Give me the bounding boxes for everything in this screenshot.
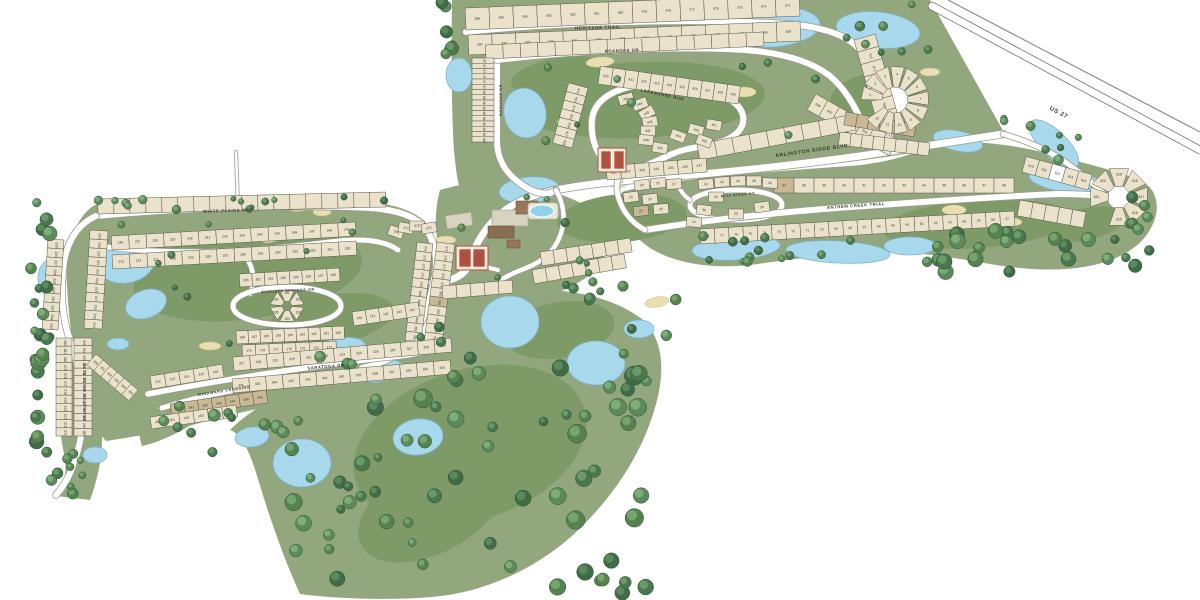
tree-highlight	[1134, 225, 1140, 231]
tree-highlight	[570, 426, 580, 436]
lot-number: 184	[287, 333, 293, 337]
lot-number: 2	[874, 82, 876, 86]
lot-number: 585	[498, 15, 504, 19]
tree-highlight	[577, 472, 586, 481]
sand-bunker	[199, 342, 221, 350]
lot-number: 204	[275, 250, 281, 254]
tree-highlight	[44, 227, 52, 235]
tree-highlight	[563, 411, 568, 416]
lot-number: 176	[286, 347, 292, 351]
lot-number: 197	[318, 274, 324, 278]
lot-number: 372	[414, 224, 420, 228]
lot-number: 460	[482, 138, 486, 144]
tree-highlight	[570, 284, 575, 289]
lot-number: 434	[654, 167, 660, 171]
tree-highlight	[1140, 201, 1146, 207]
lot	[801, 121, 821, 140]
lot	[906, 140, 919, 154]
lot-number: 24	[629, 195, 633, 199]
tree-highlight	[41, 214, 48, 221]
lot-number: 61	[948, 220, 952, 224]
lot-number: 382	[436, 309, 441, 315]
lot-number: 283	[82, 431, 86, 437]
tree-highlight	[291, 545, 298, 552]
tree-highlight	[450, 471, 458, 479]
tree-highlight	[1013, 231, 1021, 239]
tree-highlight	[356, 457, 365, 466]
lot-number: 246	[292, 230, 298, 234]
tree-highlight	[31, 327, 35, 331]
tree-highlight	[584, 261, 587, 264]
lot-number: 583	[546, 13, 552, 17]
tree-highlight	[925, 46, 929, 50]
tree-highlight	[437, 338, 442, 343]
tree-highlight	[1111, 236, 1116, 241]
tree-highlight	[545, 64, 549, 68]
lot-number: 220	[95, 269, 99, 275]
lot-number: 201	[327, 247, 333, 251]
lot-number: 208	[205, 254, 211, 258]
tree-highlight	[755, 247, 760, 252]
tree-highlight	[448, 371, 455, 378]
tree-highlight	[174, 423, 179, 428]
lot-number: 428	[717, 90, 723, 95]
lot-number: 183	[299, 332, 305, 336]
tree-highlight	[432, 403, 438, 409]
tree-highlight	[605, 554, 614, 563]
tree-highlight	[441, 27, 448, 34]
tree-highlight	[341, 218, 344, 221]
lot-number: 344	[272, 380, 278, 384]
tree-highlight	[1001, 236, 1008, 243]
lot-number: 586	[475, 16, 481, 20]
lot-number: 198	[305, 274, 311, 278]
lot-number: 429	[730, 92, 736, 97]
lot-number: 12	[875, 116, 879, 120]
lot-number: 377	[442, 264, 447, 270]
tree-highlight	[272, 198, 275, 201]
lot-number: 76	[734, 232, 738, 236]
tree-highlight	[344, 483, 349, 488]
street-label: ARLINGTON RIDGE BLVD	[83, 363, 87, 422]
lot-number: 42	[882, 184, 886, 188]
site-plan-page: 5865855845835825815805795785775765755745…	[0, 0, 1200, 600]
lot-number: 38	[802, 184, 806, 188]
lot-number: 369	[418, 290, 423, 296]
tree-highlight	[862, 41, 867, 46]
lot-number: 276	[63, 389, 67, 395]
tree-highlight	[554, 361, 563, 370]
lot-number: 68	[848, 226, 852, 230]
tree-highlight	[32, 413, 37, 418]
lot-number: 580	[618, 10, 624, 14]
lot-number: 4	[896, 73, 898, 77]
lot-number: 419	[603, 74, 609, 79]
tree-highlight	[761, 234, 766, 239]
tree-highlight	[409, 539, 413, 543]
lot-number: 615	[1116, 218, 1122, 222]
lot-number: 381	[437, 300, 442, 306]
lot-number: 27	[692, 220, 696, 224]
lot	[498, 280, 513, 294]
lot-number: 600	[786, 29, 792, 33]
tree-highlight	[381, 515, 389, 523]
lot-number: 337	[389, 370, 395, 374]
lot-number: 238	[152, 238, 158, 242]
tree-highlight	[729, 238, 734, 243]
lot-number: 372	[421, 264, 426, 270]
lot-number: 581	[594, 11, 600, 15]
tennis-court	[459, 249, 471, 267]
tree-highlight	[785, 132, 789, 136]
lot-number: 40	[842, 184, 846, 188]
lot-number: 248	[327, 228, 333, 232]
tree-highlight	[239, 199, 242, 202]
tree-highlight	[1130, 260, 1137, 267]
lot-number: 36	[768, 181, 772, 185]
lot	[917, 142, 930, 156]
sand-bunker	[644, 295, 669, 309]
lot-number: 21	[656, 181, 660, 185]
lot-number: 344	[229, 399, 235, 404]
lot	[895, 139, 908, 153]
lot-number: 336	[406, 368, 412, 372]
lot	[711, 34, 729, 49]
lot-number: 70	[820, 228, 824, 232]
tree-highlight	[923, 258, 928, 263]
lot	[354, 192, 370, 207]
lot-number: 69	[834, 227, 838, 231]
lot-number: 3	[884, 75, 886, 79]
lot-number: 10	[898, 123, 902, 127]
lot-number: 199	[293, 275, 299, 279]
lot-number: 279	[63, 365, 67, 371]
lot-number: 216	[93, 305, 97, 311]
lot-number: 424	[666, 83, 672, 88]
lot-number: 229	[52, 278, 56, 284]
lot-number: 426	[692, 86, 698, 91]
lot-number: 237	[135, 239, 141, 243]
tree-highlight	[879, 50, 883, 54]
tree-highlight	[458, 224, 462, 228]
lot-number: 374	[423, 246, 428, 252]
tree-highlight	[286, 443, 294, 451]
lot-573	[775, 0, 800, 17]
tree-highlight	[209, 448, 214, 453]
lot-number: 227	[53, 260, 57, 266]
tree-highlight	[279, 427, 285, 433]
lot	[604, 240, 619, 256]
lot-number: 186	[263, 334, 269, 338]
tree-highlight	[632, 367, 641, 376]
lot-number: 187	[251, 335, 257, 339]
tree-highlight	[543, 137, 548, 142]
lot-number: 376	[443, 255, 448, 261]
lot-number: 423	[654, 81, 660, 86]
sand-bunker	[942, 205, 966, 215]
tree-highlight	[173, 206, 178, 211]
tree-highlight	[262, 199, 266, 203]
tree-highlight	[551, 580, 560, 589]
lot-number: 6	[916, 85, 918, 89]
lot	[642, 37, 660, 52]
lot-number: 576	[713, 6, 719, 10]
lot-number: 271	[63, 430, 67, 436]
tree-highlight	[168, 252, 172, 256]
lot	[306, 194, 322, 209]
lot-number: 373	[422, 255, 427, 261]
lot	[485, 44, 503, 59]
lot-number: 32	[704, 182, 708, 186]
lot-number: 277	[63, 381, 67, 387]
tree-highlight	[68, 484, 72, 488]
lot	[598, 256, 614, 272]
lot	[470, 282, 485, 296]
tree-highlight	[639, 580, 648, 589]
lot-number: 618	[1132, 179, 1138, 183]
tree-highlight	[337, 506, 342, 511]
lot-number: 435	[668, 166, 674, 170]
lot-number: 226	[54, 251, 58, 257]
lot-number: 241	[205, 235, 211, 239]
lot-number: 437	[696, 163, 702, 167]
lot-number: 213	[118, 259, 124, 263]
lot	[484, 281, 499, 295]
lot-number: 375	[444, 246, 449, 252]
tree-highlight	[779, 256, 782, 259]
lot-number: 320	[289, 357, 295, 361]
tree-highlight	[589, 278, 594, 283]
tree-highlight	[1001, 118, 1005, 122]
tree-highlight	[1083, 234, 1091, 242]
tree-highlight	[33, 199, 38, 204]
tree-highlight	[27, 264, 33, 270]
lot-number: 75	[748, 232, 752, 236]
lot-number: 161	[370, 314, 376, 319]
lot-number: 221	[96, 260, 100, 266]
lot-number: 7	[920, 97, 922, 101]
tree-highlight	[706, 257, 710, 261]
tree-highlight	[404, 518, 409, 523]
lot-number: 352	[184, 416, 190, 421]
lot-number: 180	[335, 331, 341, 335]
lot-number: 34	[736, 179, 740, 183]
lot-number: 433	[639, 168, 645, 172]
tree-highlight	[225, 409, 230, 414]
tree-highlight	[611, 400, 621, 410]
tree-highlight	[78, 458, 82, 462]
lot-number: 73	[777, 230, 781, 234]
lot-number: 275	[63, 398, 67, 404]
lot-number: 242	[222, 234, 228, 238]
clubhouse-building	[488, 226, 514, 238]
tree-highlight	[402, 435, 409, 442]
lot-number: 371	[420, 272, 425, 278]
tree-highlight	[485, 538, 492, 545]
lot-number: 328	[423, 345, 429, 349]
lot-number: 584	[522, 14, 528, 18]
lot-number: 43	[902, 184, 906, 188]
lot-number: 233	[50, 314, 54, 320]
lot-number: 35	[752, 179, 756, 183]
tennis-court	[601, 151, 611, 169]
lot-number: 44	[922, 184, 926, 188]
tree-highlight	[260, 420, 266, 426]
swimming-pool	[530, 205, 554, 217]
tree-highlight	[740, 64, 744, 68]
lot	[322, 193, 338, 208]
lot	[555, 41, 573, 56]
lot-number: 236	[117, 240, 123, 244]
tree-highlight	[899, 48, 903, 52]
tree-highlight	[627, 510, 637, 520]
lot-number: 574	[761, 4, 767, 8]
lot-number: 60	[962, 219, 966, 223]
lot-number: 366	[414, 317, 419, 323]
tree-highlight	[465, 353, 472, 360]
lot-number: 621	[1094, 195, 1100, 199]
tree-highlight	[1005, 267, 1011, 273]
lot-number: 181	[323, 331, 329, 335]
lot	[1070, 210, 1086, 228]
lot-number: 380	[438, 291, 443, 297]
tree-highlight	[371, 487, 377, 493]
tree-highlight	[357, 492, 363, 498]
tree-highlight	[419, 436, 427, 444]
pond	[446, 58, 472, 92]
tree-highlight	[969, 253, 978, 262]
lot-number: 200	[345, 246, 351, 250]
tree-highlight	[880, 22, 885, 27]
lot	[146, 197, 162, 212]
tree-highlight	[31, 299, 36, 304]
tree-highlight	[53, 469, 59, 475]
lot-number: 293	[82, 355, 86, 361]
tree-highlight	[575, 122, 578, 125]
lot-number: 342	[305, 377, 311, 381]
tree-highlight	[585, 294, 591, 300]
lot-number: 67	[863, 225, 867, 229]
lot-number: 22	[672, 182, 676, 186]
tree-highlight	[316, 352, 322, 358]
tree-highlight	[70, 450, 75, 455]
lot-number: 192	[296, 298, 302, 302]
lot-number: 185	[275, 334, 281, 338]
lot	[558, 263, 574, 279]
tree-highlight	[272, 421, 279, 428]
lot-number: 578	[665, 8, 671, 12]
lot-number: 200	[280, 276, 286, 280]
tree-highlight	[847, 237, 851, 241]
tree-highlight	[139, 196, 144, 201]
tree-highlight	[473, 368, 481, 376]
lot-number: 177	[273, 348, 279, 352]
lot-number: 577	[689, 7, 695, 11]
lot	[540, 250, 555, 266]
tree-highlight	[1128, 192, 1134, 198]
lot-574	[751, 0, 776, 18]
tree-highlight	[489, 423, 495, 429]
lot-number: 243	[239, 233, 245, 237]
lot-number: 425	[679, 85, 685, 90]
tree-highlight	[933, 242, 939, 248]
tree-highlight	[620, 350, 625, 355]
lot-number: 62	[934, 221, 938, 225]
lot-number: 317	[239, 361, 245, 365]
tree-highlight	[1145, 246, 1150, 251]
lot-number: 436	[682, 165, 688, 169]
tree-highlight	[562, 219, 567, 224]
tree-highlight	[1042, 146, 1046, 150]
lot-number: 195	[273, 311, 279, 315]
lot-number: 324	[356, 351, 362, 355]
lot-number: 338	[372, 371, 378, 375]
lot-number: 203	[243, 278, 249, 282]
lot	[883, 138, 896, 152]
tree-highlight	[341, 194, 345, 198]
lot-number: 370	[419, 281, 424, 287]
lot-number: 178	[260, 348, 266, 352]
tree-highlight	[1103, 254, 1109, 260]
lot-number: 47	[982, 184, 986, 188]
pond	[567, 341, 625, 385]
tree-highlight	[1027, 122, 1032, 127]
tree-highlight	[818, 251, 823, 256]
lot-number: 29	[734, 212, 738, 216]
lot-number: 37	[782, 184, 786, 188]
lot-number: 8	[917, 109, 919, 113]
lot-number: 202	[310, 248, 316, 252]
tree-highlight	[635, 489, 644, 498]
lot-number: 247	[309, 229, 315, 233]
lot	[818, 118, 838, 137]
lot-number: 57	[1005, 217, 1009, 221]
lot-number: 573	[785, 3, 791, 7]
lot-number: 587	[477, 42, 483, 46]
pond	[107, 338, 129, 350]
tree-highlight	[844, 35, 848, 39]
lot-number: 340	[339, 374, 345, 378]
lot	[532, 268, 548, 284]
tree-highlight	[765, 59, 769, 63]
lot-number: 162	[383, 312, 389, 317]
tree-highlight	[1055, 156, 1060, 161]
tree-highlight	[628, 99, 633, 104]
lot-number: 223	[97, 242, 101, 248]
lot-number: 365	[413, 326, 418, 332]
tree-highlight	[184, 294, 188, 298]
lot-number: 280	[63, 357, 67, 363]
tree-highlight	[622, 384, 630, 392]
tree-highlight	[577, 257, 581, 261]
lot	[545, 265, 561, 281]
tree-highlight	[348, 360, 353, 365]
tree-highlight	[990, 225, 998, 233]
lot-number: 345	[243, 397, 249, 402]
tree-highlight	[95, 197, 100, 202]
lot-number: 282	[63, 340, 67, 346]
clubhouse-building	[507, 240, 520, 248]
street-label: ROANOKE DR	[499, 84, 503, 116]
lot-number: 65	[891, 223, 895, 227]
lot-number: 222	[96, 251, 100, 257]
tree-highlight	[1062, 253, 1070, 261]
lot-number: 325	[373, 349, 379, 353]
lot-number: 274	[63, 406, 67, 412]
tree-highlight	[786, 252, 791, 257]
lot-number: 582	[570, 12, 576, 16]
pond	[481, 296, 539, 348]
